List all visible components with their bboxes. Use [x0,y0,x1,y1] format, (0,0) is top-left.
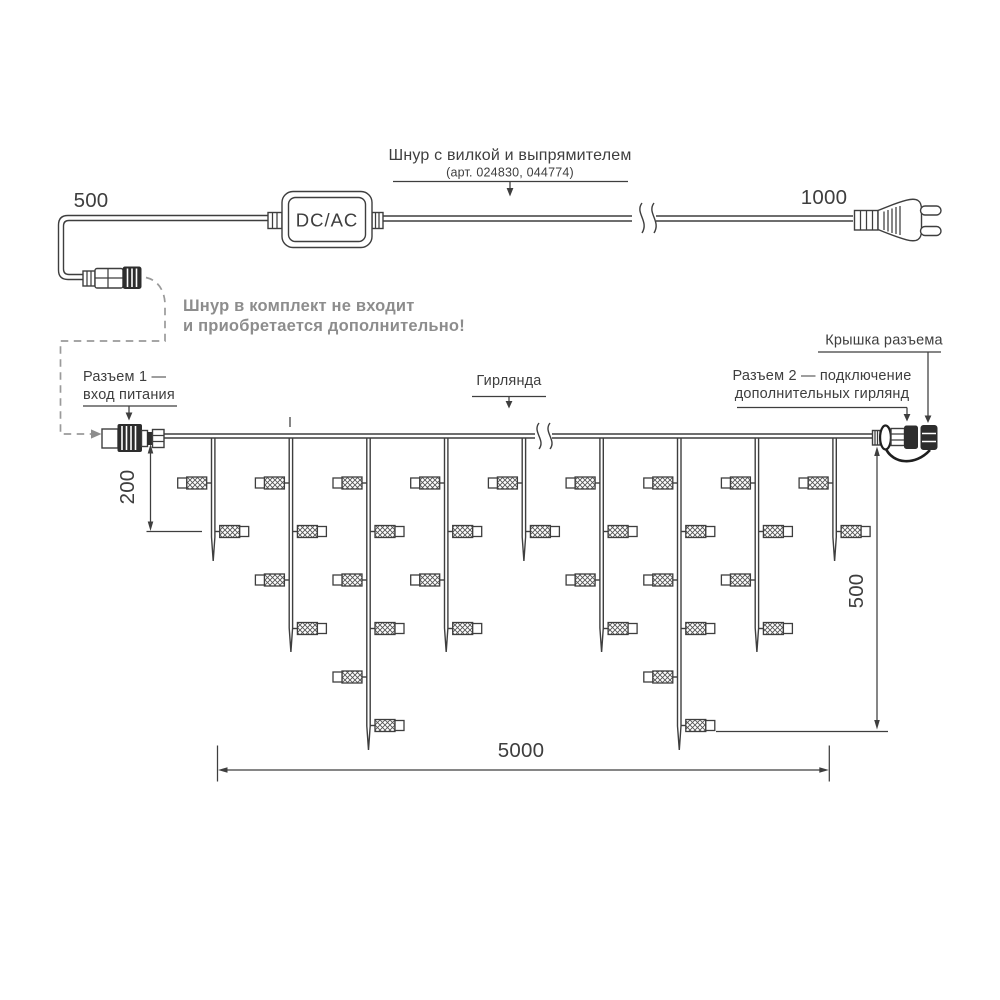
connector2-label-line2: дополнительных гирлянд [735,386,910,402]
dc-ac-adapter: DC/AC [268,192,383,248]
lamp-socket [255,575,264,585]
lamp-bulb [453,526,473,538]
icicle-drop [178,439,249,562]
lamp-socket [644,478,653,488]
lamp-bulb [187,477,207,489]
lamp-bulb [220,526,240,538]
lamp-bulb [375,526,395,538]
lamp-socket [255,478,264,488]
lamp-socket [721,478,730,488]
not-included-note-line1: Шнур в комплект не входит [183,297,415,315]
lamp-socket [706,624,715,634]
lamp-socket [473,624,482,634]
cord-cable-left [59,216,269,280]
lamp-bulb [264,477,284,489]
lamp-bulb [342,671,362,683]
lamp-bulb [575,477,595,489]
lamp-socket [628,527,637,537]
lamp-socket [395,624,404,634]
lamp-socket [783,624,792,634]
lamp-bulb [686,623,706,635]
lamp-socket [566,575,575,585]
lamp-socket [473,527,482,537]
lamp-bulb [730,477,750,489]
cord-connector [83,267,141,289]
lamp-socket [317,624,326,634]
connector1-label: Разъем 1 — вход питания [83,369,177,421]
lamp-bulb [497,477,517,489]
lamp-socket [706,527,715,537]
lamp-socket [395,721,404,731]
lamp-socket [240,527,249,537]
dim-cord-left: 500 [74,189,109,212]
lamp-socket [566,478,575,488]
lamp-socket [395,527,404,537]
lamp-bulb [730,574,750,586]
lamp-socket [861,527,870,537]
lamp-bulb [608,623,628,635]
garland-wire [164,417,872,438]
lamp-bulb [420,477,440,489]
lamp-socket [317,527,326,537]
lamp-socket [333,478,342,488]
lamp-socket [411,478,420,488]
connector1-label-line1: Разъем 1 — [83,369,166,385]
cord-cable-right [383,216,853,221]
icicle-drop [333,439,404,751]
cord-title: Шнур с вилкой и выпрямителем [388,147,631,164]
garland-diagram: DC/AC 500 1000 Шнур с вилкой и выпрямите… [0,0,1000,1000]
not-included-note-line2: и приобретается дополнительно! [183,317,465,335]
connector2-label: Разъем 2 — подключение дополнительных ги… [733,368,912,422]
connector-cap [921,426,937,450]
cap-label-text: Крышка разъема [825,333,943,349]
lamp-bulb [453,623,473,635]
lamp-bulb [763,623,783,635]
lamp-bulb [653,671,673,683]
lamp-bulb [420,574,440,586]
lamp-bulb [342,574,362,586]
lamp-bulb [575,574,595,586]
lamp-bulb [763,526,783,538]
lamp-bulb [686,720,706,732]
icicle-drop [721,439,792,653]
dashed-arrow-icon [91,429,102,438]
lamp-socket [333,575,342,585]
lamp-bulb [608,526,628,538]
lamp-socket [644,672,653,682]
cord-title-leader: Шнур с вилкой и выпрямителем (арт. 02483… [388,147,631,197]
lamp-bulb [841,526,861,538]
power-plug-icon [855,199,942,241]
lamp-socket [799,478,808,488]
lamp-socket [411,575,420,585]
lamp-socket [628,624,637,634]
dim-drop-max: 500 [845,574,868,609]
lamp-socket [550,527,559,537]
garland-label-text: Гирлянда [476,373,542,389]
connector1-label-line2: вход питания [83,387,175,403]
lamp-socket [488,478,497,488]
connector2-label-line1: Разъем 2 — подключение [733,368,912,384]
lamp-socket [706,721,715,731]
wire-break-icon [537,423,552,449]
garland-label: Гирлянда [472,373,546,409]
dim-length: 5000 [498,739,544,762]
lamp-bulb [375,720,395,732]
icicle-drop [255,439,326,653]
dimension-length-5000: 5000 [218,739,830,782]
lamp-bulb [297,623,317,635]
icicle-drop [799,439,870,562]
icicle-drop [566,439,637,653]
cord-title-articles: (арт. 024830, 044774) [446,166,574,180]
garland-drops [178,439,870,751]
lamp-bulb [530,526,550,538]
adapter-label: DC/AC [296,210,359,231]
lamp-socket [783,527,792,537]
lamp-bulb [297,526,317,538]
lamp-socket [178,478,187,488]
lamp-bulb [342,477,362,489]
dim-drop-min: 200 [116,470,139,505]
diagram-canvas: DC/AC 500 1000 Шнур с вилкой и выпрямите… [0,0,1000,1000]
lamp-socket [644,575,653,585]
lamp-bulb [653,574,673,586]
icicle-drop [644,439,715,751]
dim-cord-right: 1000 [801,186,847,209]
icicle-drop [488,439,559,562]
icicle-drop [411,439,482,653]
lamp-bulb [686,526,706,538]
lamp-bulb [264,574,284,586]
garland-assembly [102,417,937,750]
lamp-socket [721,575,730,585]
lamp-bulb [653,477,673,489]
cable-break-icon [640,203,656,233]
not-included-dashed-path: Шнур в комплект не входит и приобретаетс… [61,278,465,439]
power-cord-assembly: DC/AC 500 1000 Шнур с вилкой и выпрямите… [59,147,942,289]
lamp-bulb [808,477,828,489]
lamp-socket [333,672,342,682]
input-connector [102,425,164,452]
lamp-bulb [375,623,395,635]
